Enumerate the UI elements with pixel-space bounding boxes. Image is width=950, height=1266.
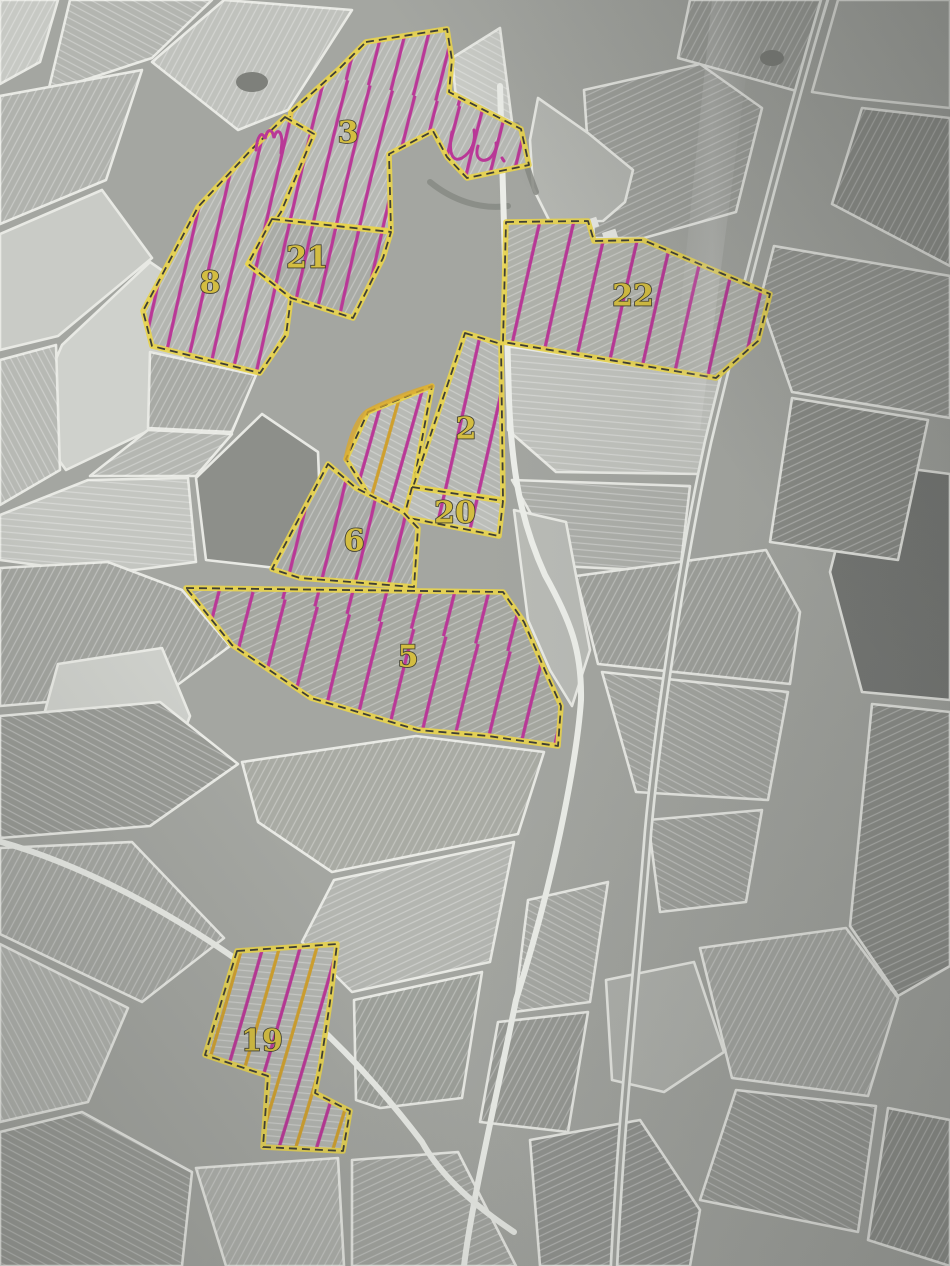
photo-vignette-bottom-right bbox=[0, 0, 950, 1266]
map-canvas: 3821222206519 bbox=[0, 0, 950, 1266]
aerial-map-photo: 3821222206519 bbox=[0, 0, 950, 1266]
